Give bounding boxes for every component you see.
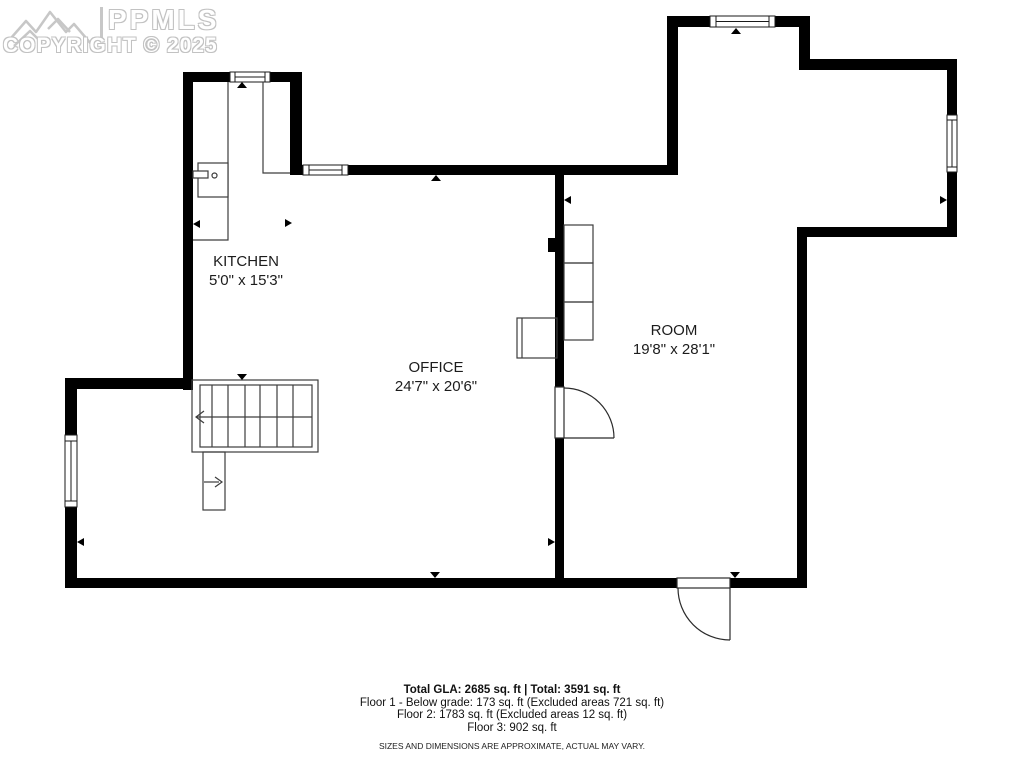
room-label-kitchen: KITCHEN 5'0" x 15'3" bbox=[209, 252, 283, 290]
wall-kitchen-right bbox=[290, 72, 302, 175]
measure-markers bbox=[77, 28, 947, 578]
disclaimer-line: SIZES AND DIMENSIONS ARE APPROXIMATE, AC… bbox=[0, 741, 1024, 751]
measure-marker-left bbox=[193, 220, 200, 228]
wall-right-lower bbox=[797, 227, 807, 588]
window-room-top-icon bbox=[710, 16, 775, 27]
chase-area-boundary bbox=[263, 82, 290, 173]
measure-marker-up bbox=[731, 28, 741, 34]
room-dimensions: 5'0" x 15'3" bbox=[209, 271, 283, 290]
window-kitchen-top-icon bbox=[230, 72, 270, 82]
room-name: OFFICE bbox=[395, 358, 477, 377]
room-label-room: ROOM 19'8" x 28'1" bbox=[633, 321, 715, 359]
total-gla-line: Total GLA: 2685 sq. ft | Total: 3591 sq.… bbox=[0, 684, 1024, 697]
measure-marker-down bbox=[237, 374, 247, 380]
wall-office-room-divider bbox=[555, 175, 564, 588]
wall-room-right-step bbox=[797, 227, 957, 237]
measure-marker-right bbox=[285, 219, 292, 227]
wall-room-upper-left bbox=[667, 16, 678, 175]
staircase-icon bbox=[192, 380, 318, 510]
shelf-unit-2 bbox=[564, 263, 593, 302]
floor1-line: Floor 1 - Below grade: 173 sq. ft (Exclu… bbox=[0, 697, 1024, 710]
wall-room-upper-right bbox=[799, 16, 810, 70]
office-cabinet-icon bbox=[517, 318, 557, 358]
wall-room-upper-step bbox=[799, 59, 957, 70]
wall-divider-stub bbox=[548, 238, 556, 252]
floor3-line: Floor 3: 902 sq. ft bbox=[0, 722, 1024, 735]
shelf-unit-3 bbox=[564, 302, 593, 340]
floorplan-page: PPMLS COPYRIGHT © 2025 KITCHEN 5'0" x 15… bbox=[0, 0, 1024, 768]
floor2-line: Floor 2: 1783 sq. ft (Excluded areas 12 … bbox=[0, 709, 1024, 722]
stair-landing bbox=[203, 452, 225, 510]
room-name: ROOM bbox=[633, 321, 715, 340]
shelf-unit-1 bbox=[564, 225, 593, 263]
door-office-room-icon bbox=[555, 387, 614, 438]
measure-marker-right bbox=[940, 196, 947, 204]
measure-marker-down bbox=[430, 572, 440, 578]
room-name: KITCHEN bbox=[209, 252, 283, 271]
measure-marker-up bbox=[431, 175, 441, 181]
watermark-copyright: COPYRIGHT © 2025 bbox=[3, 34, 218, 58]
measure-marker-left bbox=[564, 196, 571, 204]
wall-left-step bbox=[65, 378, 192, 389]
window-office-top-icon bbox=[303, 165, 348, 175]
door-exterior-icon bbox=[677, 578, 730, 640]
window-left-icon bbox=[65, 435, 77, 507]
room-dimensions: 24'7" x 20'6" bbox=[395, 377, 477, 396]
measure-marker-left bbox=[77, 538, 84, 546]
watermark-org: PPMLS bbox=[108, 4, 219, 36]
windows bbox=[65, 16, 957, 507]
kitchen-appliance-icon bbox=[193, 163, 228, 197]
window-room-right-icon bbox=[947, 115, 957, 172]
kitchen-area-boundary bbox=[193, 82, 228, 240]
area-summary: Total GLA: 2685 sq. ft | Total: 3591 sq.… bbox=[0, 684, 1024, 751]
doors bbox=[555, 387, 730, 640]
measure-marker-right bbox=[548, 538, 555, 546]
kitchen-fixtures bbox=[193, 82, 290, 240]
measure-marker-down bbox=[730, 572, 740, 578]
stair-direction-arrow bbox=[196, 411, 312, 423]
measure-marker-up bbox=[237, 82, 247, 88]
floorplan-drawing bbox=[0, 0, 1024, 768]
room-label-office: OFFICE 24'7" x 20'6" bbox=[395, 358, 477, 396]
room-dimensions: 19'8" x 28'1" bbox=[633, 340, 715, 359]
walls bbox=[65, 16, 957, 588]
wall-kitchen-left bbox=[183, 72, 193, 390]
